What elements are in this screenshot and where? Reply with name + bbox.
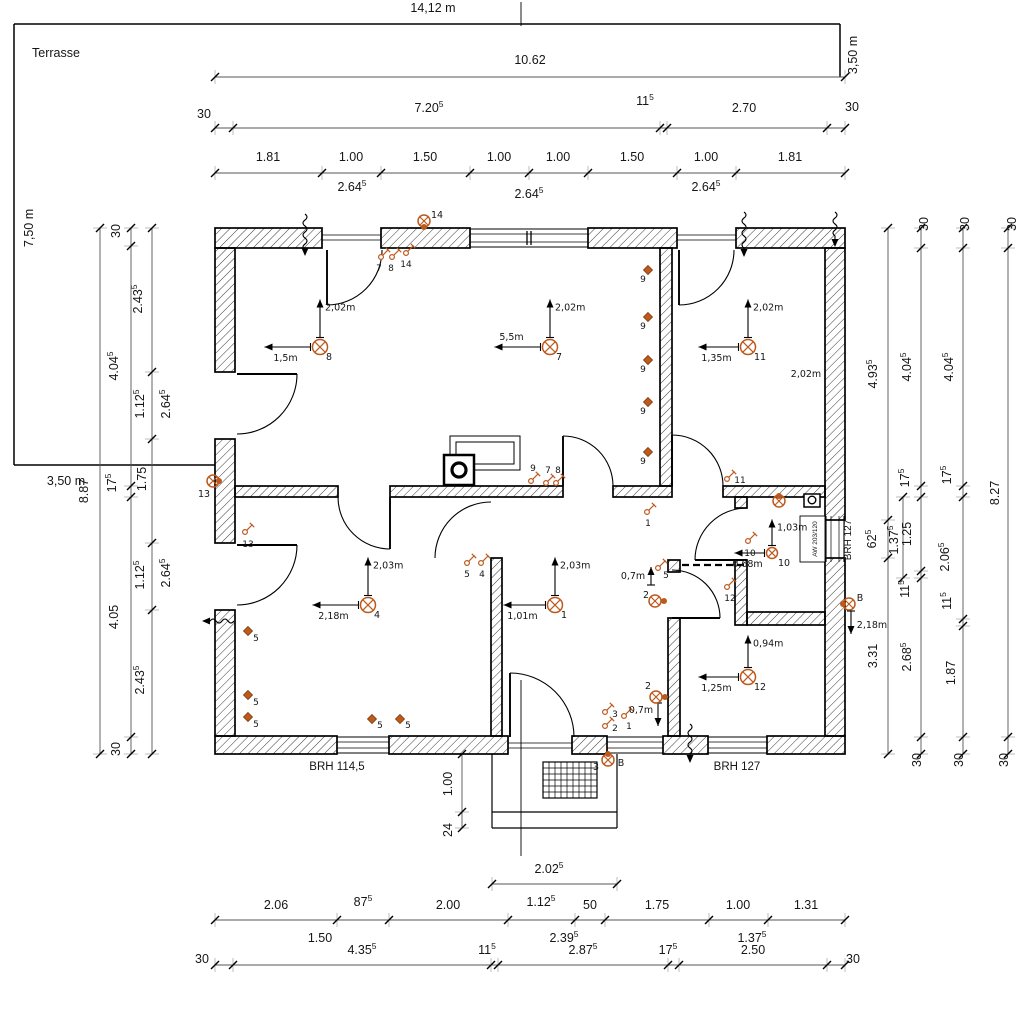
height-arrow [654, 703, 662, 726]
drawing-text: 1.50 [413, 150, 437, 164]
drawing-text: 7,50 m [22, 209, 36, 247]
drawing-text: 30 [910, 753, 924, 767]
drawing-text: 1.00 [487, 150, 511, 164]
switch-symbol: 13 [242, 523, 254, 550]
door-swing-arc [237, 545, 297, 605]
drawing-text: 7 [556, 352, 562, 363]
switch-symbol: 1 [645, 503, 657, 529]
drawing-text: 1.50 [620, 150, 644, 164]
drawing-text: 1,5m [273, 353, 297, 364]
drawing-text: 1.00 [339, 150, 363, 164]
drawing-text: 13 [242, 540, 253, 550]
drawing-text: 9 [640, 407, 646, 417]
drawing-text: 2.70 [732, 101, 756, 115]
drawing-text: 9 [640, 457, 646, 467]
drawing-text: 2.645 [691, 178, 720, 194]
drawing-text: 3.31 [866, 644, 880, 668]
drawing-text: 2 [612, 724, 618, 734]
drawing-text: 2.00 [436, 898, 460, 912]
wall-segment [381, 228, 470, 248]
drawing-text: 11 [734, 476, 745, 486]
drawing-text: 1.00 [694, 150, 718, 164]
drawing-text: 30 [952, 753, 966, 767]
door-swing-arc [327, 250, 382, 305]
wall-segment [825, 248, 845, 520]
drawing-text: 7.205 [414, 99, 443, 115]
socket-symbol: 9 [640, 266, 652, 286]
drawing-text: 1,01m [507, 611, 537, 622]
height-arrow [847, 611, 855, 634]
drawing-text: 4.05 [107, 605, 121, 629]
drawing-text: B [618, 758, 625, 769]
drawing-text: 1.125 [131, 560, 147, 589]
drawing-text: 4.045 [105, 351, 121, 380]
drawing-text: 2.025 [534, 860, 563, 876]
drawing-text: 2,18m [318, 611, 348, 622]
drawing-text: 1.87 [944, 661, 958, 685]
drawing-text: 8.27 [988, 481, 1002, 505]
ceiling-lamp-symbol: 1,03m0,68m10 [732, 520, 807, 571]
drawing-text: 875 [354, 893, 373, 909]
drawing-text: 1.125 [131, 389, 147, 418]
wall-segment [235, 486, 338, 497]
drawing-text: B [857, 593, 864, 604]
drawing-text: 8 [388, 264, 394, 274]
wall-lamp-symbol: 2 [645, 681, 668, 703]
outline-layer [14, 2, 840, 856]
drawing-text: 5 [253, 698, 259, 708]
door-swing-arc [338, 497, 390, 549]
height-arrow [647, 567, 655, 585]
ceiling-lamp-symbol: 2,02m1,35m11 [699, 300, 784, 365]
drawing-text: 1 [645, 519, 651, 529]
wall-segment [588, 228, 677, 248]
drawing-text: 115 [938, 592, 954, 610]
drawing-text: 2,03m [373, 561, 403, 572]
text-layer: 14,12 mTerrasse7,50 m3,50 m3,50 m10.6230… [22, 1, 1019, 966]
wall-lamp-symbol: 14 [418, 210, 443, 230]
switch-symbol: 9 [529, 464, 541, 483]
drawing-text: 12 [724, 594, 735, 604]
drawing-text: 1 [626, 722, 632, 732]
drawing-text: 14 [431, 210, 443, 221]
drawing-text: 14,12 m [410, 1, 455, 15]
drawing-text: 2 [643, 590, 649, 601]
drawing-text: 4 [479, 570, 485, 580]
drawing-text: 9 [640, 322, 646, 332]
drawing-text: 0,7m [629, 705, 653, 716]
drawing-text: 2,18m [857, 620, 887, 631]
drawing-text: 8 [555, 466, 561, 476]
switch-symbol: 5 [656, 559, 669, 581]
drawing-text: 1.81 [778, 150, 802, 164]
drawing-text: 1.00 [441, 772, 455, 796]
drawing-text: 4.935 [864, 359, 880, 388]
drawing-text: 30 [197, 107, 211, 121]
drawing-text: 8.87 [77, 479, 91, 503]
drawing-text: 5 [405, 721, 411, 731]
drawing-text: 2.065 [936, 542, 952, 571]
drawing-text: 2.685 [898, 642, 914, 671]
page: 2,02m1,5m82,02m5,5m72,02m1,35m112,03m2,1… [0, 0, 1034, 1036]
drawing-text: 1.31 [794, 898, 818, 912]
drawing-text: 30 [997, 753, 1011, 767]
drawing-text: 5 [663, 571, 669, 581]
wall-segment [613, 486, 672, 497]
drawing-text: 7 [376, 264, 382, 274]
drawing-text: 175 [896, 468, 912, 487]
drawing-text: 5 [377, 721, 383, 731]
ceiling-lamp-symbol: 2,02m5,5m7 [495, 300, 586, 364]
drawing-text: 2,02m [753, 303, 783, 314]
drawing-text: 50 [583, 898, 597, 912]
wall-segment [491, 558, 502, 736]
drawing-text: 7 [545, 466, 551, 476]
drawing-text: 8 [326, 352, 332, 363]
door-swing-arc [563, 436, 613, 486]
drawing-text: 625 [863, 529, 879, 548]
wall-segment [825, 558, 845, 736]
drawing-text: 115 [896, 580, 912, 598]
drawing-text: 10 [778, 558, 790, 569]
floor-plan-canvas: 2,02m1,5m82,02m5,5m72,02m1,35m112,03m2,1… [0, 0, 1034, 1036]
drawing-text: 0,68m [732, 559, 762, 570]
drawing-text: 2,02m [791, 369, 821, 380]
wall-segment [390, 486, 563, 497]
ceiling-lamp-symbol: 2,03m2,18m4 [313, 558, 404, 623]
drawing-text: 13 [198, 489, 210, 500]
wall-segment [767, 736, 845, 754]
door-swing-arc [672, 570, 720, 618]
drawing-text: 2,02m [555, 303, 585, 314]
drawing-text: 12 [754, 682, 766, 693]
drawing-text: BRH 127 [714, 761, 761, 773]
ceiling-lamp-symbol: 2,03m1,01m1 [504, 558, 591, 623]
socket-symbol: 9 [640, 313, 652, 333]
door-swing-arc [510, 673, 574, 737]
drawing-text: 1.375 [885, 525, 901, 554]
socket-symbol: 5 [244, 627, 259, 645]
drawing-text: 2.875 [568, 941, 597, 957]
drawing-text: 4.355 [347, 941, 376, 957]
drawing-text: 1.25 [900, 522, 914, 546]
drawing-text: 0,94m [753, 639, 783, 650]
drawing-text: 1.00 [726, 898, 750, 912]
wall-lamp-symbol: 2 [643, 590, 667, 607]
drawing-text: 2.06 [264, 898, 288, 912]
drawing-text: 3 [612, 710, 618, 720]
drawing-text: 1,25m [701, 683, 731, 694]
socket-symbol: 5 [244, 691, 259, 709]
drawing-text: 14 [400, 260, 412, 270]
drawing-text: 175 [938, 465, 954, 484]
drawing-text: BRH 127 [843, 519, 854, 560]
drawing-text: 175 [103, 473, 119, 492]
drawing-text: 4 [374, 610, 380, 621]
drawing-text: 2.645 [157, 389, 173, 418]
ceiling-lamp-symbol: 2,02m1,5m8 [265, 300, 356, 365]
door-swing-arc [237, 374, 297, 434]
drawing-text: 30 [846, 952, 860, 966]
drawing-text: 2.645 [157, 558, 173, 587]
drawing-text: 30 [845, 100, 859, 114]
drawing-text: 30 [917, 217, 931, 231]
wall-segment [660, 248, 672, 486]
drawing-text: 2.50 [741, 943, 765, 957]
drawing-text: 2 [645, 681, 651, 692]
drawing-text: 10.62 [514, 53, 545, 67]
drawing-text: 115 [636, 92, 654, 108]
drawing-text: 30 [109, 224, 123, 238]
drawing-text: 9 [640, 365, 646, 375]
drawing-text: BRH 114,5 [309, 761, 364, 773]
socket-symbol: 9 [640, 356, 652, 376]
socket-symbol: 5 [368, 715, 383, 732]
socket-symbol: 5 [244, 713, 259, 731]
drawing-text: 5 [253, 720, 259, 730]
drawing-text: 1.75 [645, 898, 669, 912]
drawing-text: 30 [195, 952, 209, 966]
drawing-text: 0,7m [621, 571, 645, 582]
drawing-text: 3 [593, 762, 599, 773]
drawing-text: 9 [530, 464, 536, 474]
drawing-text: 1.00 [546, 150, 570, 164]
wall-segment [389, 736, 508, 754]
door-swing-arc [435, 502, 491, 558]
socket-symbol: 9 [640, 448, 652, 468]
wall-segment [572, 736, 607, 754]
wall-segment [215, 736, 337, 754]
drawing-text: 9 [640, 275, 646, 285]
drawing-text: 2.645 [337, 178, 366, 194]
wall-segment [215, 248, 235, 372]
drawing-text: 175 [659, 941, 678, 957]
drawing-text: 1 [561, 610, 567, 621]
drawing-text: 30 [109, 742, 123, 756]
socket-symbol: 5 [396, 715, 411, 732]
drawing-text: 2.435 [129, 284, 145, 313]
wall-segment [747, 612, 825, 625]
wall-segment [735, 497, 747, 508]
drawing-text: 4.045 [940, 352, 956, 381]
drawing-text: 11 [754, 352, 766, 363]
wall-segment [663, 736, 708, 754]
switch-symbol: 10 [744, 532, 757, 559]
drawing-text: Terrasse [32, 46, 80, 60]
drawing-text: 5,5m [499, 332, 523, 343]
drawing-text: 1.125 [526, 893, 555, 909]
wall-segment [736, 228, 845, 248]
door-swing-arc [679, 250, 734, 305]
drawing-text: 24 [441, 823, 455, 837]
switch-symbol: 11 [725, 470, 746, 486]
drawing-text: 10 [744, 549, 756, 559]
drawing-text: 2,03m [560, 561, 590, 572]
drawing-text: 115 [478, 941, 496, 957]
drawing-text: 1.50 [308, 931, 332, 945]
drawing-text: 5 [253, 634, 259, 644]
drawing-text: 30 [1005, 217, 1019, 231]
drawing-text: 1,35m [701, 353, 731, 364]
drawing-text: 2.645 [514, 185, 543, 201]
switch-symbol: 5 [464, 554, 476, 580]
wall-segment [215, 439, 235, 543]
drawing-text: 2,02m [325, 303, 355, 314]
drawing-text: 3,50 m [846, 36, 860, 74]
door-swing-arc [672, 435, 723, 486]
wall-segment [668, 618, 680, 736]
drawing-text: 1.81 [256, 150, 280, 164]
drawing-text: 1.75 [135, 467, 149, 491]
extras-layer [202, 212, 855, 798]
drawing-text: 4.045 [898, 352, 914, 381]
drawing-text: 2.435 [131, 665, 147, 694]
ceiling-lamp-symbol: 0,94m1,25m12 [699, 636, 784, 695]
drawing-text: AW 203/120 [812, 521, 819, 557]
drawing-text: 30 [958, 217, 972, 231]
switch-symbol: 4 [479, 554, 491, 580]
socket-symbol: 9 [640, 398, 652, 418]
wall-segment [215, 610, 235, 736]
drawing-text: 1,03m [777, 523, 807, 534]
drawing-text: 5 [464, 570, 470, 580]
